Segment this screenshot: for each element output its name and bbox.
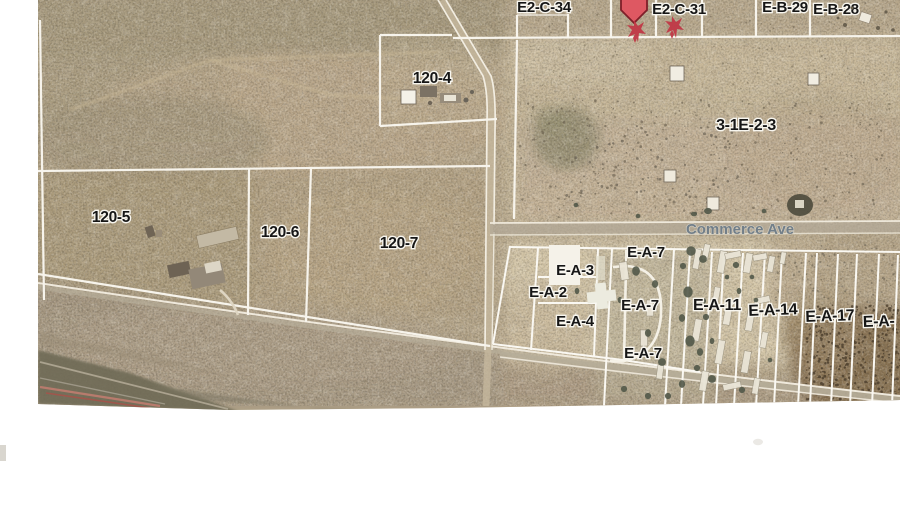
svg-text:E-A-11: E-A-11 bbox=[693, 297, 741, 314]
svg-text:E-B-28: E-B-28 bbox=[813, 1, 859, 18]
svg-text:Commerce Ave: Commerce Ave bbox=[686, 221, 794, 238]
svg-text:E-A-7: E-A-7 bbox=[624, 345, 662, 362]
svg-text:E-A-7: E-A-7 bbox=[627, 244, 665, 261]
svg-text:E-A-2: E-A-2 bbox=[529, 284, 567, 301]
svg-text:E-A-: E-A- bbox=[863, 313, 895, 331]
svg-text:E-A-17: E-A-17 bbox=[805, 307, 855, 326]
svg-text:120-5: 120-5 bbox=[92, 209, 131, 226]
svg-text:120-7: 120-7 bbox=[380, 235, 418, 252]
svg-text:E-B-29: E-B-29 bbox=[762, 0, 808, 16]
svg-text:E2-C-31: E2-C-31 bbox=[652, 1, 706, 18]
svg-text:120-6: 120-6 bbox=[261, 224, 300, 241]
svg-text:E-A-3: E-A-3 bbox=[556, 262, 594, 279]
svg-text:E-A-14: E-A-14 bbox=[748, 301, 798, 320]
svg-text:E-A-4: E-A-4 bbox=[556, 313, 595, 330]
svg-text:3-1E-2-3: 3-1E-2-3 bbox=[716, 117, 776, 134]
svg-text:E-A-7: E-A-7 bbox=[621, 297, 659, 314]
svg-text:120-4: 120-4 bbox=[413, 70, 452, 87]
svg-text:E2-C-34: E2-C-34 bbox=[517, 0, 572, 16]
